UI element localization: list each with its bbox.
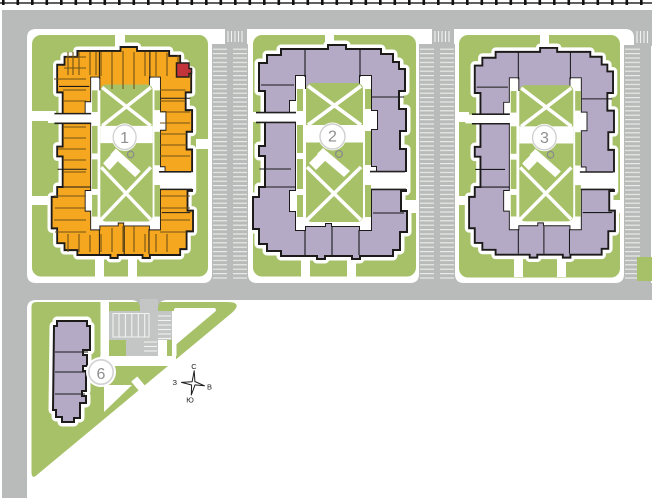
- svg-text:В: В: [207, 383, 212, 392]
- svg-text:3: 3: [540, 130, 549, 147]
- svg-text:Ю: Ю: [186, 396, 194, 405]
- svg-text:С: С: [191, 362, 197, 371]
- svg-text:1: 1: [120, 130, 129, 147]
- svg-text:2: 2: [328, 129, 337, 146]
- svg-text:6: 6: [97, 366, 106, 383]
- svg-text:З: З: [173, 378, 178, 387]
